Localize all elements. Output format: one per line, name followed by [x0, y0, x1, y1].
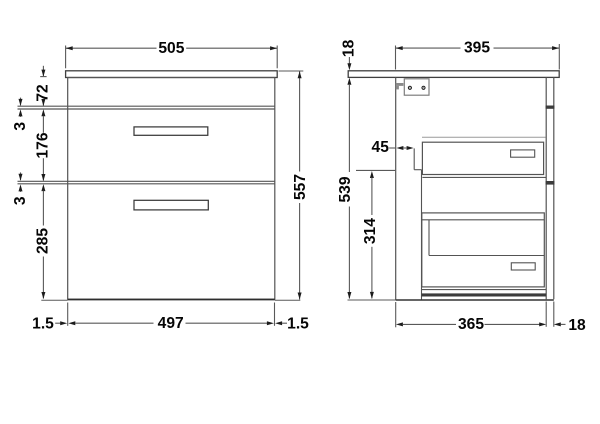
svg-text:1.5: 1.5 [32, 315, 54, 332]
svg-text:45: 45 [372, 139, 390, 156]
svg-text:365: 365 [458, 316, 484, 333]
svg-text:395: 395 [464, 40, 490, 57]
svg-text:1.5: 1.5 [287, 315, 309, 332]
svg-text:557: 557 [292, 174, 309, 200]
svg-text:18: 18 [340, 39, 357, 57]
svg-text:285: 285 [35, 228, 52, 254]
svg-text:3: 3 [12, 122, 29, 131]
svg-text:505: 505 [158, 40, 184, 57]
svg-text:539: 539 [337, 176, 354, 202]
svg-text:497: 497 [158, 315, 184, 332]
svg-text:314: 314 [362, 218, 379, 244]
svg-text:18: 18 [568, 317, 586, 334]
svg-text:3: 3 [12, 196, 29, 205]
svg-text:176: 176 [35, 132, 52, 158]
